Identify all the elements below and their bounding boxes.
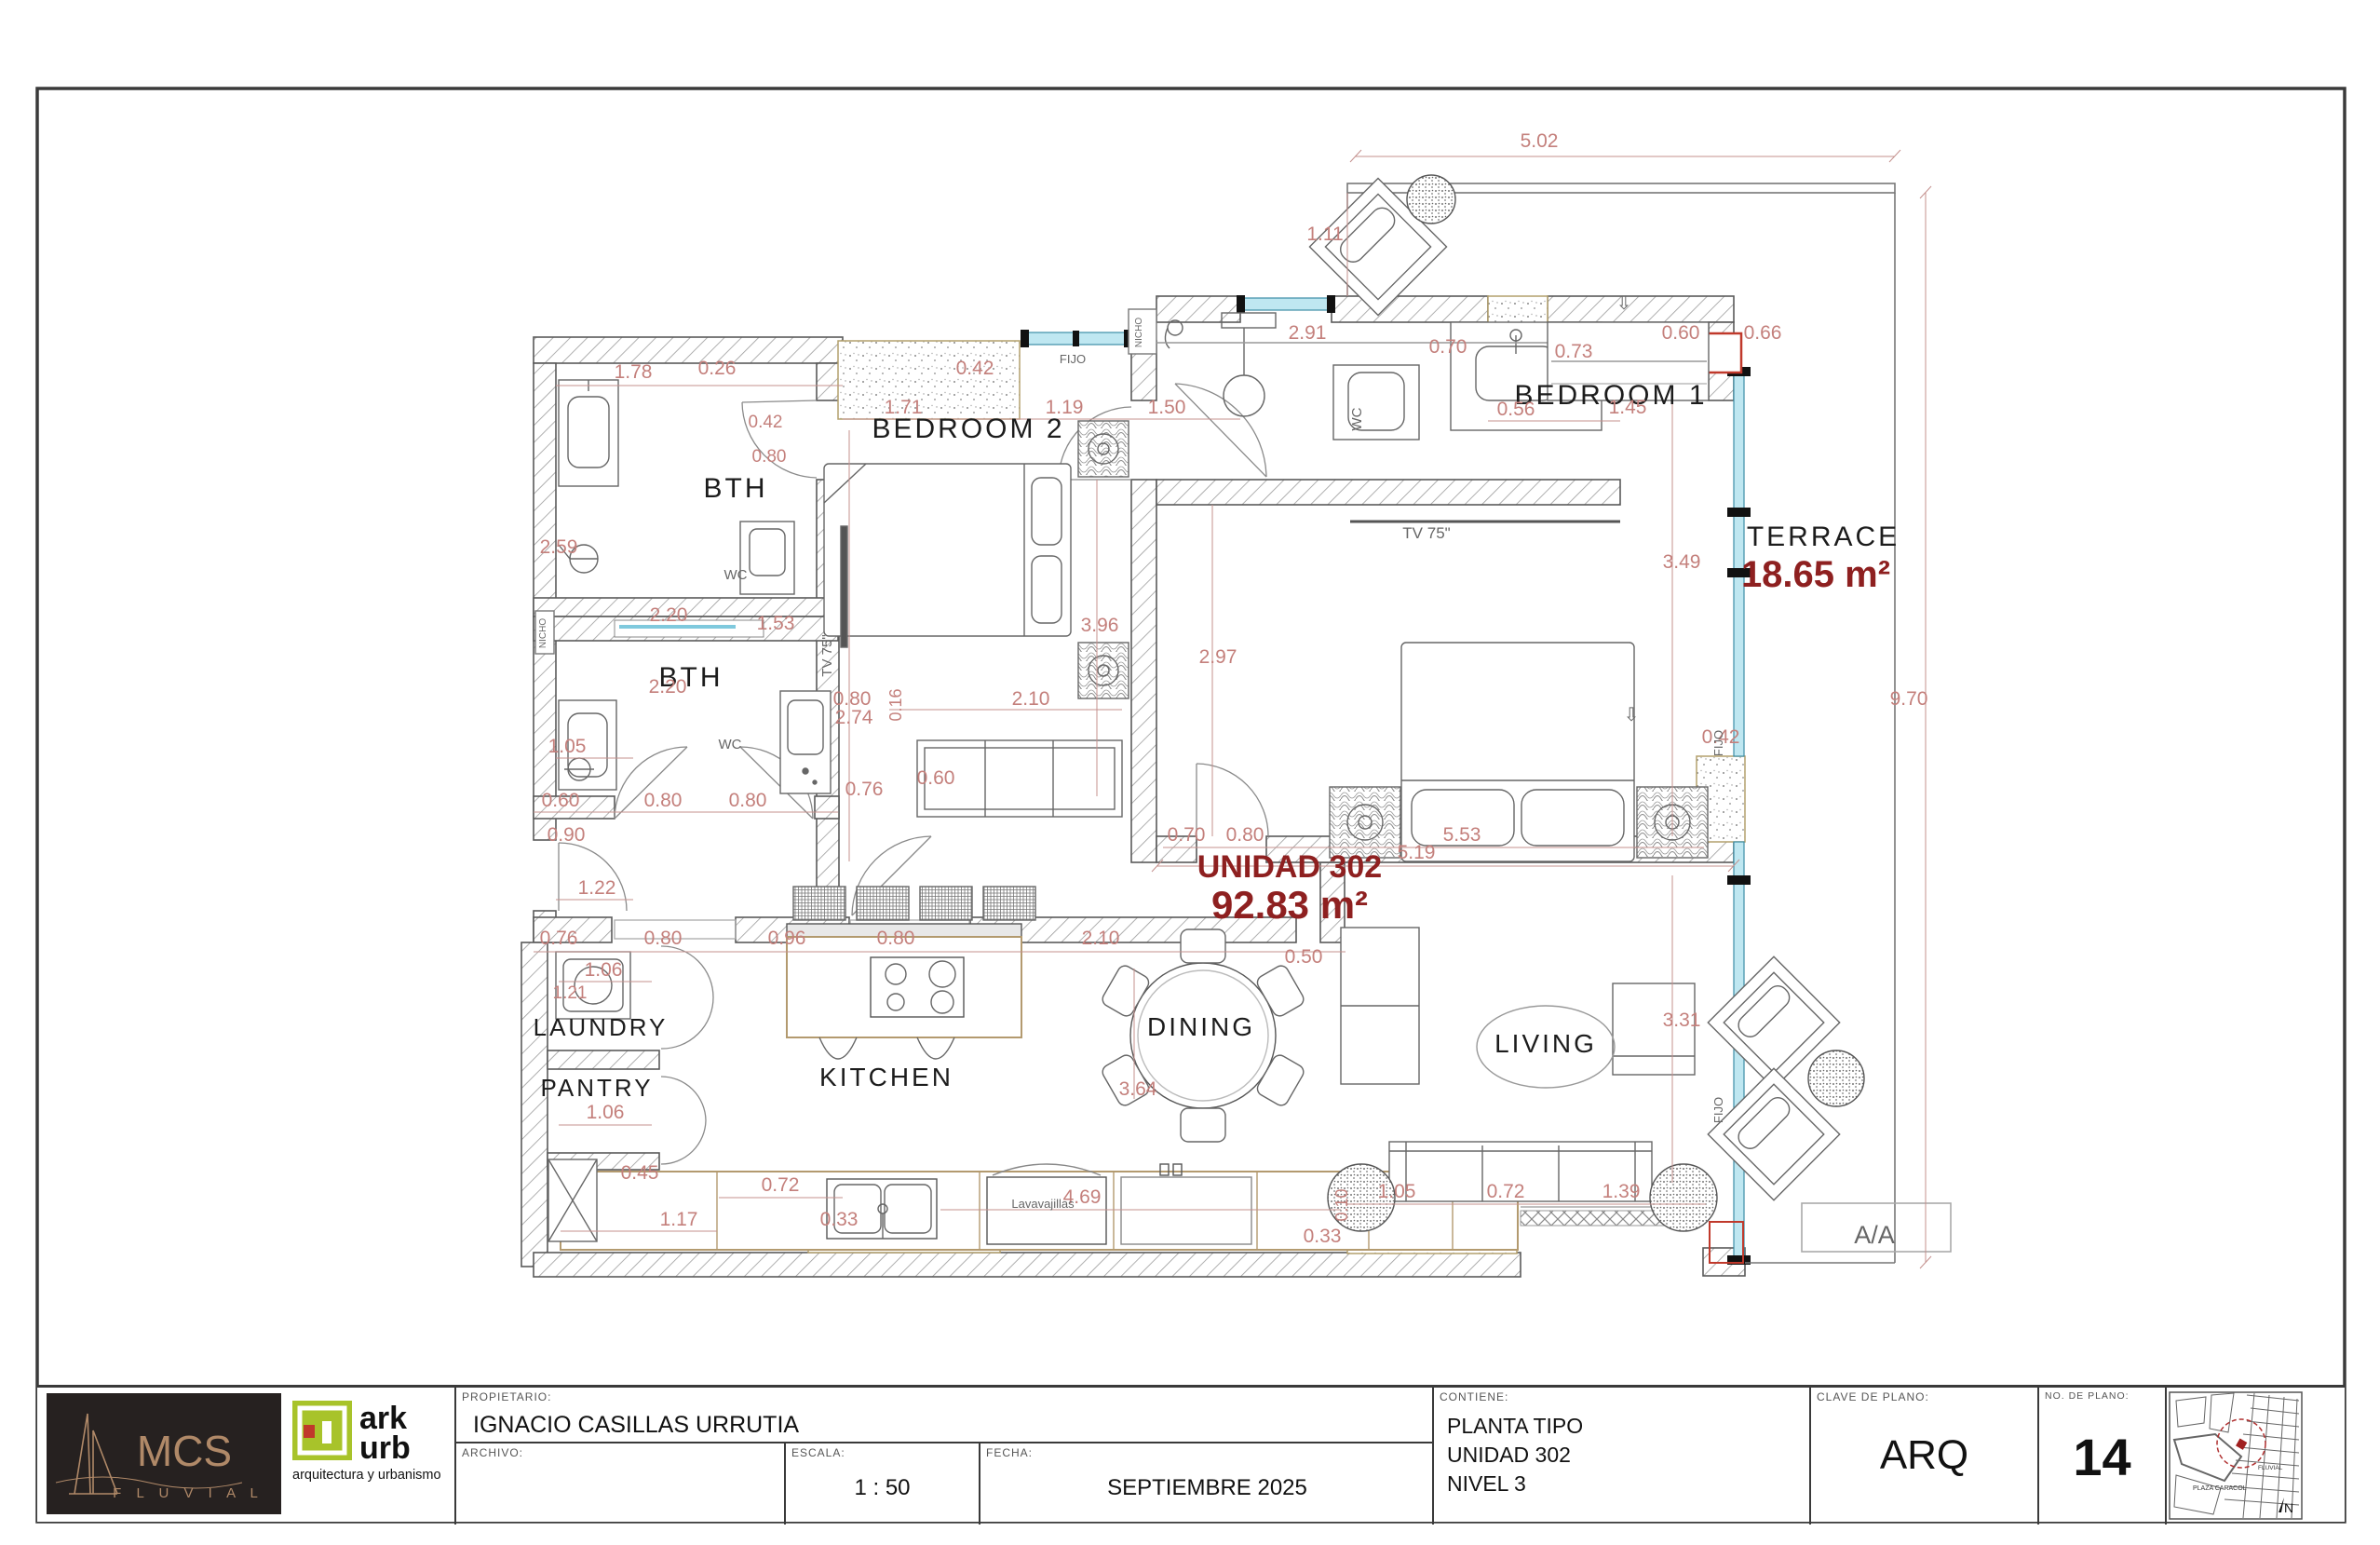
fecha-cell: FECHA: SEPTIEMBRE 2025 — [980, 1443, 1434, 1525]
dimension-label: 5.19 — [1398, 842, 1436, 863]
annotation-label: FIJO — [1711, 1097, 1725, 1123]
dimension-label: 0.26 — [698, 358, 737, 379]
clave-cell: CLAVE DE PLANO: ARQ — [1811, 1388, 2039, 1525]
arkurb-logo: ark urb arquitectura y urbanismo — [291, 1397, 451, 1518]
room-label: LAUNDRY — [534, 1013, 669, 1041]
annotation-label: ⇩ — [1616, 293, 1632, 314]
fecha-label: FECHA: — [986, 1446, 1033, 1459]
dimension-label: 3.96 — [1081, 615, 1119, 636]
propietario-label: PROPIETARIO: — [462, 1390, 551, 1403]
dimension-label: 0.90 — [548, 824, 586, 846]
annotation-label: FIJO — [1060, 352, 1086, 366]
escala-value: 1 : 50 — [786, 1475, 979, 1501]
dimension-label: 1.53 — [757, 613, 795, 634]
dimension-label: 0.80 — [1226, 824, 1264, 846]
dimension-label: 0.45 — [621, 1162, 659, 1184]
propietario-value: IGNACIO CASILLAS URRUTIA — [473, 1412, 799, 1439]
annotation-label: A/A — [1854, 1221, 1895, 1249]
arkurb-line2: urb — [359, 1430, 411, 1466]
dimension-label: 2.59 — [540, 536, 578, 558]
dimension-label: 0.70 — [1429, 336, 1467, 358]
room-label: LIVING — [1494, 1029, 1597, 1058]
floor-plan: BEDROOM 2BEDROOM 1BTHBTHTERRACEDININGLIV… — [0, 0, 2380, 1540]
dimension-label: 0.80 — [752, 447, 787, 467]
dimension-label: 9.70 — [1890, 688, 1928, 710]
dimension-label: 0.70 — [1168, 824, 1206, 846]
mcs-fluvial-logo: MCS F L U V I A L — [47, 1393, 281, 1514]
owner-cell: PROPIETARIO: IGNACIO CASILLAS URRUTIA AR… — [456, 1388, 1434, 1525]
annotation-label: WC — [719, 737, 742, 752]
annotation-label: WC — [724, 567, 748, 583]
clave-value: ARQ — [1811, 1432, 2037, 1479]
dimension-label: 0.42 — [956, 358, 994, 379]
dimension-label: 1.17 — [660, 1209, 698, 1230]
numero-cell: NO. DE PLANO: 14 — [2039, 1388, 2167, 1525]
dimension-label: 2.91 — [1289, 322, 1327, 344]
dimension-label: 1.71 — [885, 397, 923, 418]
annotation-label: NICHO — [538, 618, 548, 648]
dimension-label: 3.49 — [1663, 551, 1701, 573]
contiene-label: CONTIENE: — [1440, 1390, 1508, 1403]
area-label: 18.65 m² — [1741, 554, 1890, 595]
dimension-label: 0.42 — [749, 413, 783, 432]
dimension-label: 1.78 — [615, 361, 653, 383]
dimension-label: 1.11 — [1306, 224, 1343, 245]
dimension-label: 0.80 — [644, 790, 683, 811]
dimension-label: 1.06 — [587, 1102, 625, 1123]
area-label: UNIDAD 302 — [1197, 849, 1382, 885]
room-label: PANTRY — [540, 1074, 653, 1102]
annotation-label: ⇩ — [1624, 705, 1640, 725]
dimension-label: 1.39 — [1602, 1181, 1641, 1202]
annotation-label: TV 75" — [819, 634, 835, 676]
annotation-label: FIJO — [1711, 730, 1725, 756]
dimension-label: 1.45 — [1609, 397, 1647, 418]
dimension-label: 0.80 — [877, 928, 915, 949]
dimension-label: 2.10 — [1082, 928, 1120, 949]
dimension-label: 2.74 — [835, 707, 873, 728]
room-label: BTH — [704, 473, 768, 504]
fecha-value: SEPTIEMBRE 2025 — [980, 1475, 1434, 1501]
contiene-cell: CONTIENE: PLANTA TIPO UNIDAD 302 NIVEL 3 — [1434, 1388, 1811, 1525]
dimension-label: 0.80 — [833, 688, 872, 710]
dimension-label: 5.53 — [1443, 824, 1481, 846]
dimension-label: 1.05 — [548, 736, 587, 757]
location-map: PLAZA CARACOL FLUVIAL N — [2169, 1391, 2303, 1520]
dimension-label: 1.21 — [553, 983, 588, 1003]
dimension-label: 0.72 — [1487, 1181, 1525, 1202]
map-label-fluvial: FLUVIAL — [2258, 1465, 2283, 1471]
mcs-logo-text: MCS — [137, 1427, 232, 1475]
dimension-label: 0.80 — [729, 790, 767, 811]
title-block: MCS F L U V I A L ark urb arquitectura y… — [37, 1385, 2345, 1522]
mcs-logo-subtext: F L U V I A L — [113, 1485, 264, 1501]
map-cell: PLAZA CARACOL FLUVIAL N — [2167, 1388, 2345, 1525]
dimension-label: 2.97 — [1199, 646, 1237, 668]
contiene-line2: UNIDAD 302 — [1447, 1441, 1583, 1470]
map-north-label: N — [2284, 1500, 2293, 1515]
dimension-label: 0.56 — [1497, 399, 1535, 420]
dimension-label: 0.76 — [540, 928, 578, 949]
dimension-label: 0.72 — [762, 1174, 800, 1196]
numero-label: NO. DE PLANO: — [2045, 1390, 2130, 1402]
dimension-label: 3.31 — [1663, 1010, 1701, 1031]
dimension-label: 0.73 — [1555, 341, 1593, 362]
dimension-label: 0.16 — [886, 688, 905, 721]
annotation-label: WC — [1349, 407, 1365, 430]
contiene-line1: PLANTA TIPO — [1447, 1412, 1583, 1441]
dimension-label: 2.20 — [649, 676, 687, 698]
dimension-label: 3.64 — [1119, 1078, 1157, 1100]
dimension-label: 0.66 — [1744, 322, 1782, 344]
dimension-label: 0.60 — [917, 767, 955, 789]
dimension-label: 5.02 — [1521, 130, 1559, 152]
dimension-label: 0.33 — [1304, 1226, 1342, 1247]
dimension-label: 1.19 — [1046, 397, 1084, 418]
annotation-label: Lavavajillas — [1011, 1197, 1075, 1211]
archivo-label: ARCHIVO: — [462, 1446, 523, 1459]
dimension-label: 0.96 — [768, 928, 806, 949]
dimension-label: 1.05 — [1378, 1181, 1416, 1202]
escala-cell: ESCALA: 1 : 50 — [786, 1443, 980, 1525]
dimension-label: 2.20 — [650, 604, 688, 626]
arkurb-tagline: arquitectura y urbanismo — [292, 1468, 441, 1483]
clave-label: CLAVE DE PLANO: — [1817, 1390, 1929, 1403]
dimension-label: 0.50 — [1285, 946, 1323, 968]
numero-value: 14 — [2039, 1427, 2165, 1487]
dimension-label: 0.60 — [542, 790, 580, 811]
dimension-label: 0.80 — [644, 928, 683, 949]
archivo-cell: ARCHIVO: — [456, 1443, 786, 1525]
dimension-label: 2.10 — [1012, 688, 1050, 710]
area-label: 92.83 m² — [1211, 883, 1368, 927]
dimension-label: 0.10 — [1332, 1188, 1351, 1221]
map-label-plaza: PLAZA CARACOL — [2193, 1485, 2247, 1492]
logo-cell: MCS F L U V I A L ark urb arquitectura y… — [37, 1388, 456, 1525]
room-label: TERRACE — [1747, 522, 1900, 552]
dimension-label: 0.33 — [820, 1209, 859, 1230]
room-label: DINING — [1147, 1012, 1255, 1041]
annotation-label: NICHO — [1134, 318, 1144, 347]
annotation-label: TV 75" — [1402, 524, 1450, 542]
room-label: KITCHEN — [819, 1063, 953, 1091]
dimension-label: 0.60 — [1662, 322, 1700, 344]
dimension-label: 1.50 — [1148, 397, 1186, 418]
dimension-label: 1.22 — [578, 877, 616, 899]
escala-label: ESCALA: — [791, 1446, 845, 1459]
contiene-line3: NIVEL 3 — [1447, 1470, 1583, 1498]
drawing-sheet: BEDROOM 2BEDROOM 1BTHBTHTERRACEDININGLIV… — [0, 0, 2380, 1540]
dimension-label: 0.76 — [845, 779, 884, 800]
dimension-label: 1.06 — [585, 959, 623, 981]
